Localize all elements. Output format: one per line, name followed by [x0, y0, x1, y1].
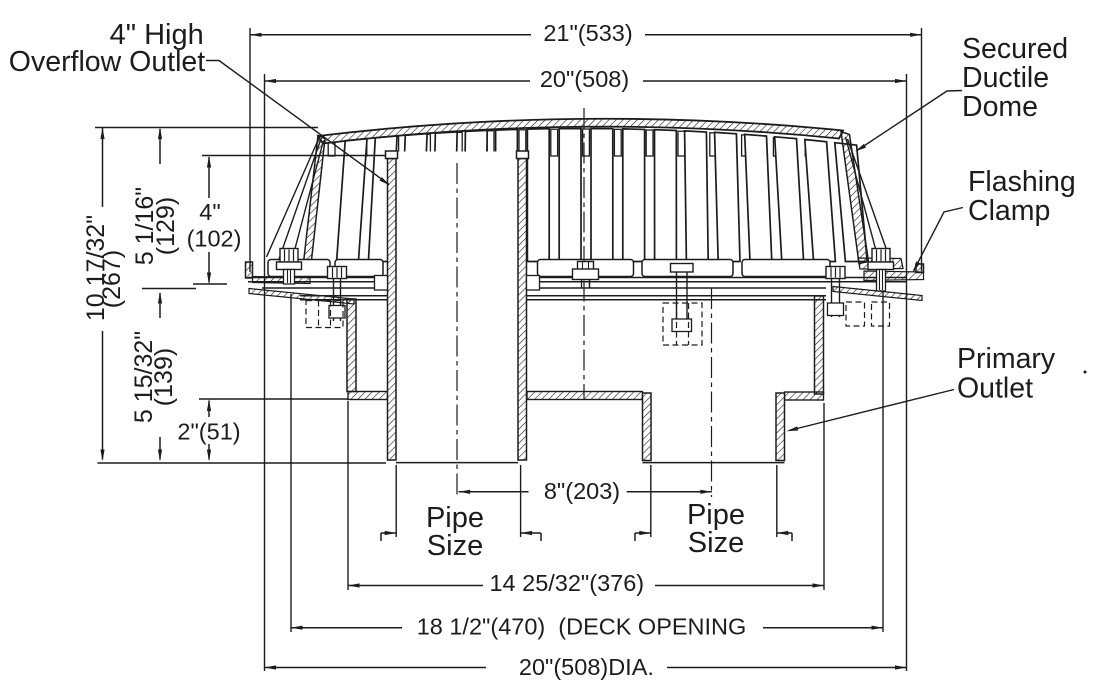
- svg-text:14 25/32"(376): 14 25/32"(376): [489, 570, 644, 596]
- svg-text:Primary: Primary: [957, 343, 1056, 375]
- svg-text:Size: Size: [427, 530, 483, 562]
- svg-text:Flashing: Flashing: [968, 166, 1076, 198]
- svg-text:Secured: Secured: [962, 33, 1068, 65]
- svg-text:Outlet: Outlet: [957, 373, 1033, 405]
- svg-text:(102): (102): [187, 226, 242, 252]
- svg-text:18 1/2"(470) (DECK OPENING: 18 1/2"(470) (DECK OPENING: [417, 614, 747, 640]
- svg-text:(129): (129): [152, 197, 180, 255]
- svg-text:20"(508): 20"(508): [540, 66, 629, 92]
- svg-text:20"(508)DIA.: 20"(508)DIA.: [519, 654, 654, 680]
- svg-text:Ductile: Ductile: [962, 62, 1049, 94]
- svg-text:8"(203): 8"(203): [544, 478, 620, 504]
- svg-text:Overflow Outlet: Overflow Outlet: [9, 46, 205, 78]
- svg-text:2"(51): 2"(51): [177, 419, 240, 445]
- svg-text:Size: Size: [688, 527, 744, 559]
- svg-text:(139): (139): [150, 348, 178, 406]
- svg-text:Dome: Dome: [962, 91, 1038, 123]
- svg-text:(267): (267): [98, 250, 126, 308]
- svg-text:Clamp: Clamp: [968, 195, 1050, 227]
- svg-text:4": 4": [199, 199, 220, 225]
- svg-text:21"(533): 21"(533): [543, 20, 632, 46]
